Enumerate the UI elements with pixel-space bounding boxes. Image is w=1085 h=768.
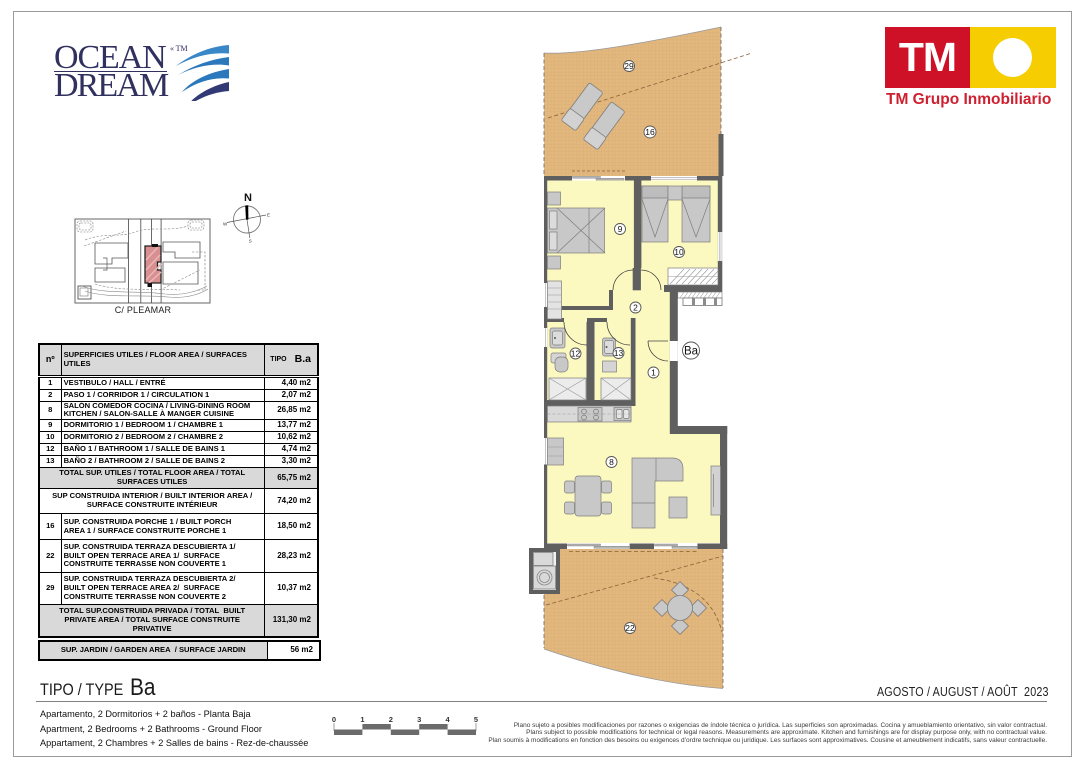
svg-text:3: 3 <box>417 715 421 724</box>
svg-text:E: E <box>267 213 270 218</box>
svg-text:2: 2 <box>633 303 638 313</box>
svg-text:4: 4 <box>446 715 451 724</box>
svg-text:C/ PLEAMAR: C/ PLEAMAR <box>115 305 172 315</box>
svg-text:29: 29 <box>624 61 634 71</box>
svg-text:12: 12 <box>571 349 581 359</box>
svg-text:2: 2 <box>389 715 393 724</box>
svg-text:9: 9 <box>618 224 623 234</box>
svg-text:S: S <box>249 239 252 244</box>
svg-text:16: 16 <box>645 127 655 137</box>
svg-text:13: 13 <box>614 348 624 358</box>
svg-text:1: 1 <box>651 368 656 378</box>
svg-text:10: 10 <box>674 247 684 257</box>
svg-text:5: 5 <box>474 715 478 724</box>
svg-text:N: N <box>244 192 252 204</box>
svg-text:22: 22 <box>625 623 635 633</box>
svg-text:Ba: Ba <box>684 346 699 358</box>
svg-text:8: 8 <box>609 457 614 467</box>
svg-text:1: 1 <box>360 715 364 724</box>
svg-text:0: 0 <box>332 715 336 724</box>
